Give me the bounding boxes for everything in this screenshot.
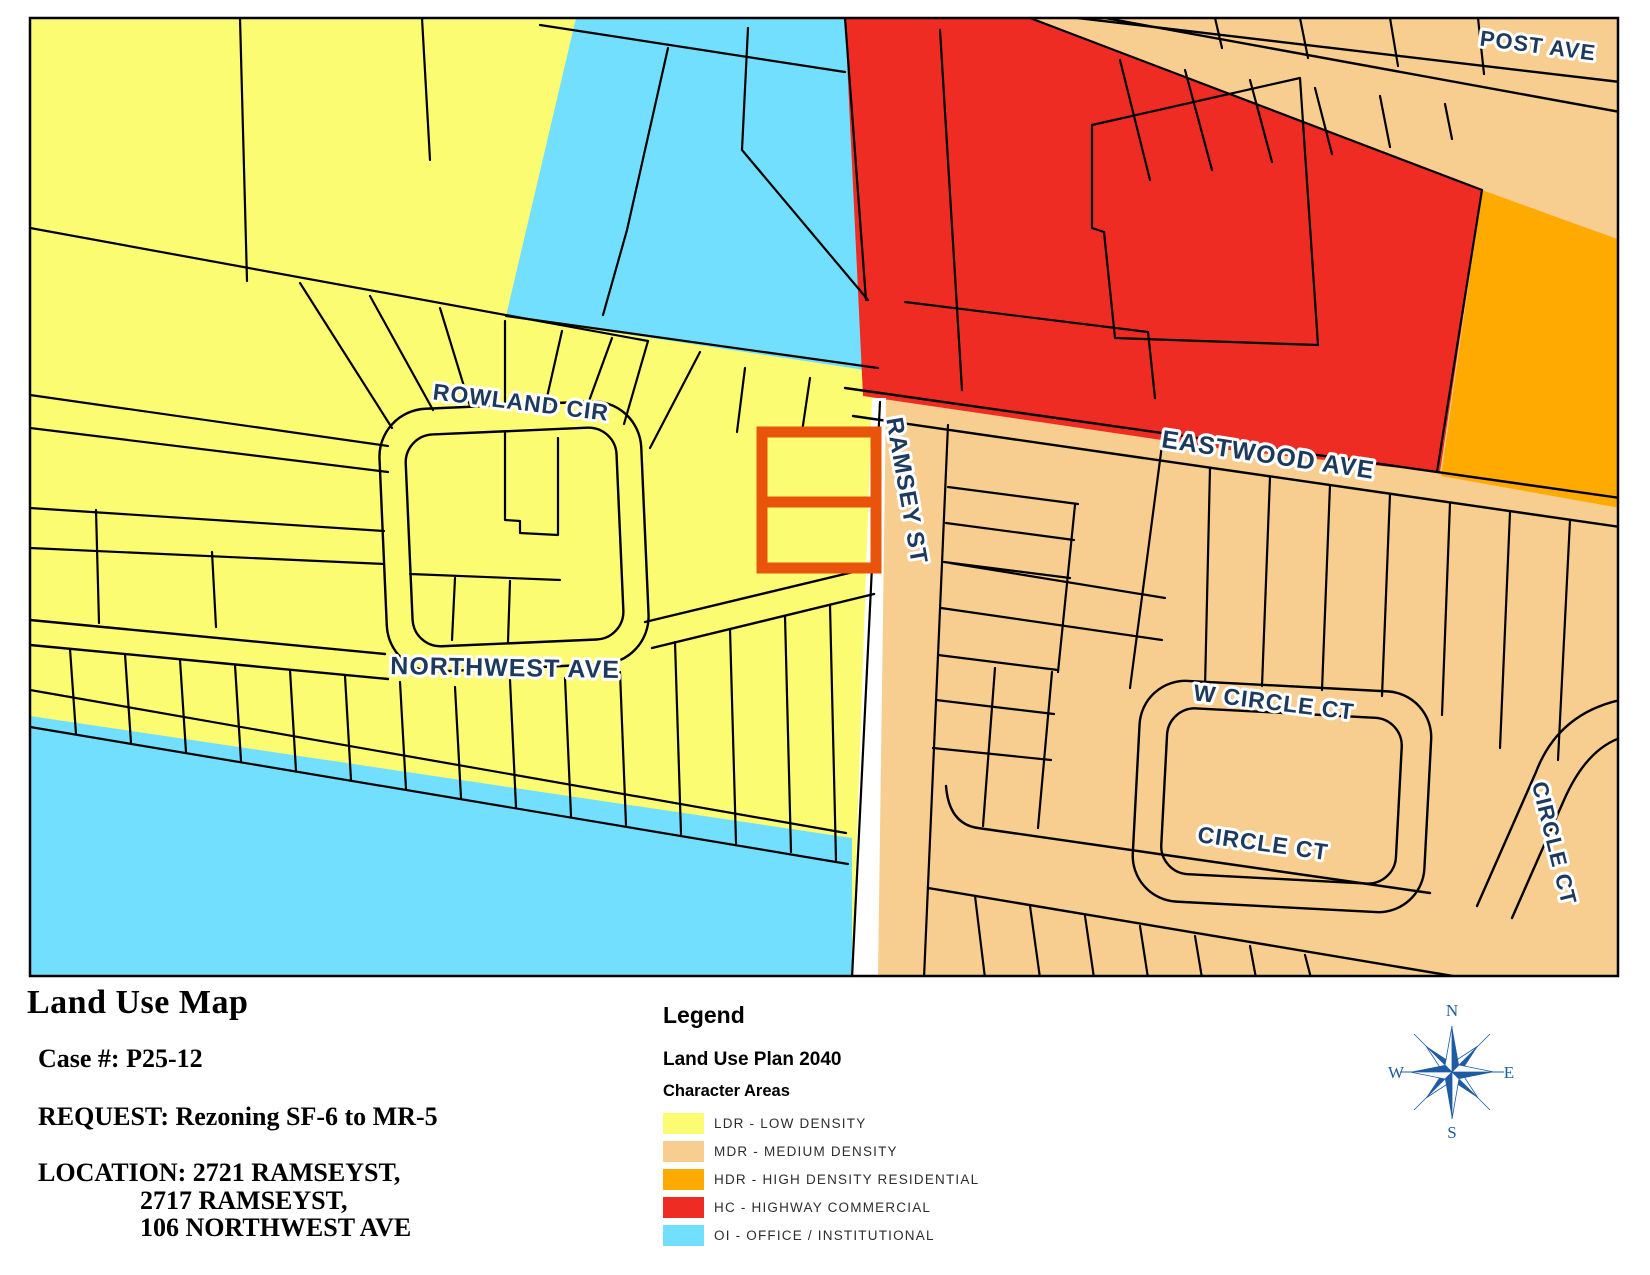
legend-heading: Legend: [663, 1002, 1083, 1029]
location-line-3: 106 NORTHWEST AVE: [140, 1213, 411, 1243]
compass-north-label: N: [1446, 1001, 1458, 1020]
legend-item-label: HDR - HIGH DENSITY RESIDENTIAL: [714, 1172, 979, 1187]
compass-south-label: S: [1447, 1123, 1456, 1142]
legend-item: HC - HIGHWAY COMMERCIAL: [663, 1193, 1083, 1221]
street-label-northwest-ave: NORTHWEST AVE: [390, 652, 620, 684]
legend-items: LDR - LOW DENSITYMDR - MEDIUM DENSITYHDR…: [663, 1109, 1083, 1249]
legend-item: OI - OFFICE / INSTITUTIONAL: [663, 1221, 1083, 1249]
request-line: REQUEST: Rezoning SF-6 to MR-5: [38, 1102, 438, 1132]
legend-swatch: [663, 1169, 704, 1190]
legend-item: MDR - MEDIUM DENSITY: [663, 1137, 1083, 1165]
page-title: Land Use Map: [27, 984, 248, 1022]
legend-item-label: HC - HIGHWAY COMMERCIAL: [714, 1200, 931, 1215]
legend-swatch: [663, 1113, 704, 1134]
legend-item-label: LDR - LOW DENSITY: [714, 1116, 866, 1131]
legend-item: LDR - LOW DENSITY: [663, 1109, 1083, 1137]
legend-subheading: Land Use Plan 2040: [663, 1049, 1083, 1071]
compass-west-label: W: [1388, 1063, 1405, 1082]
legend-swatch: [663, 1141, 704, 1162]
land-use-map: ROWLAND CIR NORTHWEST AVE RAMSEY ST EAST…: [0, 0, 1650, 992]
legend-swatch: [663, 1197, 704, 1218]
legend-item: HDR - HIGH DENSITY RESIDENTIAL: [663, 1165, 1083, 1193]
compass-east-label: E: [1504, 1063, 1514, 1082]
case-number: Case #: P25-12: [38, 1044, 203, 1074]
compass-rose: N S W E: [1387, 997, 1517, 1147]
legend-group-label: Character Areas: [663, 1082, 1083, 1101]
legend-item-label: MDR - MEDIUM DENSITY: [714, 1144, 898, 1159]
legend-item-label: OI - OFFICE / INSTITUTIONAL: [714, 1228, 935, 1243]
location-line-2: 2717 RAMSEYST,: [140, 1186, 348, 1216]
legend-swatch: [663, 1225, 704, 1246]
legend: Legend Land Use Plan 2040 Character Area…: [663, 1002, 1083, 1249]
location-line-1: LOCATION: 2721 RAMSEYST,: [38, 1158, 400, 1188]
compass-needles: [1400, 1026, 1504, 1119]
